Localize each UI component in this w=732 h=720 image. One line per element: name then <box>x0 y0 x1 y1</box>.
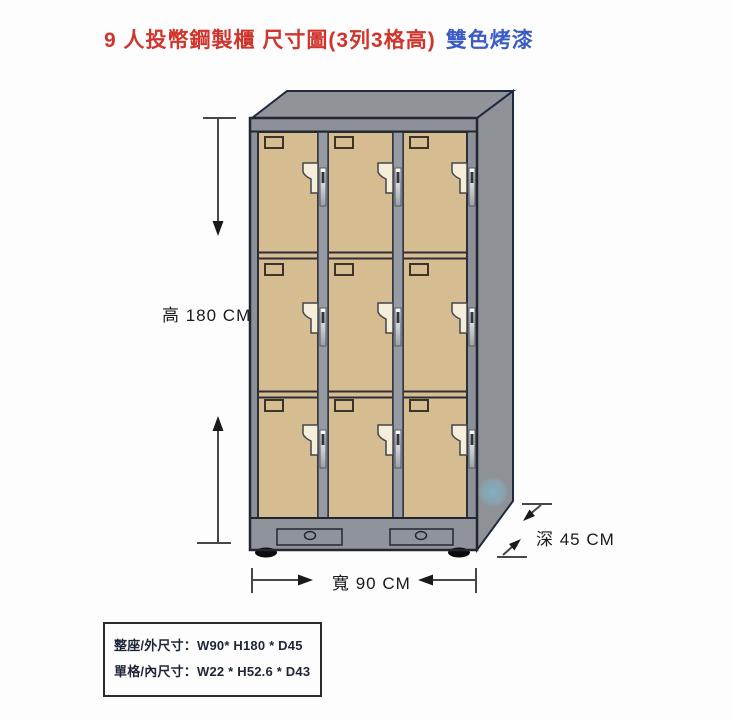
arrow-down-icon <box>213 221 224 236</box>
coin-slot <box>322 312 325 323</box>
coin-slot <box>322 434 325 445</box>
height-dimension-label: 高 180 CM <box>162 301 251 326</box>
coin-slot <box>471 312 474 323</box>
watermark-logo-icon <box>478 477 508 507</box>
spec-inner-dimensions: 單格/內尺寸：W22 * H52.6 * D43 <box>114 659 314 685</box>
page: 9 人投幣鋼製櫃 尺寸圖(3列3格高)雙色烤漆 <box>0 0 732 720</box>
arrow-right-icon <box>298 575 313 586</box>
width-dimension-label: 寬 90 CM <box>332 569 411 594</box>
height-dimension-arrows <box>197 118 236 543</box>
cabinet-top-panel <box>252 91 513 118</box>
coin-slot <box>397 434 400 445</box>
coin-slot <box>397 312 400 323</box>
arrow-up-icon <box>213 416 224 431</box>
depth-dimension-label: 深 45 CM <box>536 525 615 550</box>
locker-door-column-3 <box>403 132 467 518</box>
coin-slot <box>322 172 325 183</box>
arrow-left-icon <box>418 575 433 586</box>
coin-slot <box>471 172 474 183</box>
coin-slot <box>397 172 400 183</box>
spec-outer-dimensions: 整座/外尺寸：W90* H180 * D45 <box>114 633 314 659</box>
spec-box: 整座/外尺寸：W90* H180 * D45 單格/內尺寸：W22 * H52.… <box>103 622 322 697</box>
locker-door-column-1 <box>258 132 318 518</box>
coin-slot <box>471 434 474 445</box>
locker-door-column-2 <box>328 132 393 518</box>
locker-cabinet-illustration <box>0 0 732 720</box>
